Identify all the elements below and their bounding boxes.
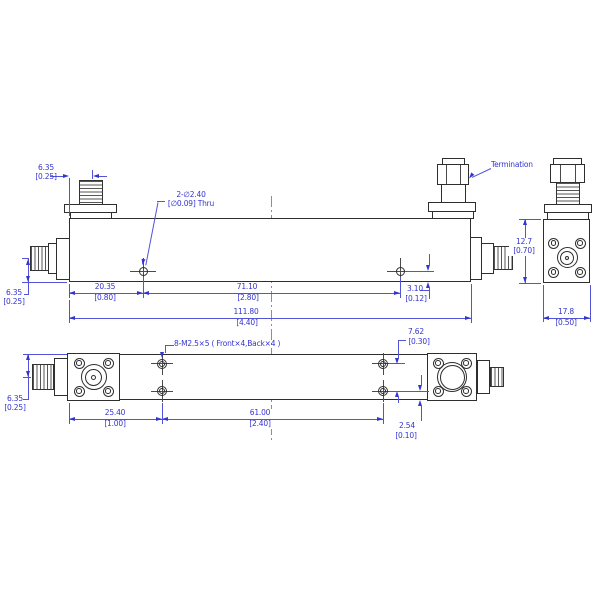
dim-value-mm: 2.54 bbox=[393, 422, 421, 431]
leader-line bbox=[165, 345, 166, 353]
tapped-hole-inner bbox=[159, 361, 165, 367]
termination-hex-nut bbox=[437, 164, 469, 185]
connector-thread bbox=[490, 367, 504, 387]
dimension-line bbox=[421, 375, 422, 385]
hex-facet-line bbox=[575, 165, 576, 182]
dimension-line bbox=[99, 176, 107, 177]
dimension-line bbox=[398, 340, 399, 358]
dim-value-mm: 25.40 bbox=[98, 409, 132, 418]
sma-center-pin bbox=[565, 256, 569, 260]
screw-hole-inner bbox=[577, 240, 583, 246]
sma-center-pin bbox=[91, 375, 96, 380]
dim-value-in: [4.40] bbox=[233, 319, 261, 328]
leader-line bbox=[166, 345, 174, 346]
dimension-line bbox=[398, 397, 399, 403]
dim-value-in: [1.00] bbox=[102, 420, 128, 429]
extension-line bbox=[69, 403, 70, 424]
arrowhead bbox=[543, 316, 549, 320]
arrowhead bbox=[465, 316, 471, 320]
termination-flange-step bbox=[547, 212, 589, 220]
coupler-dimension-drawing: 6.35 [0.25] 2-∅2.40 [∅0.09] Thru 6.35 [0… bbox=[0, 0, 600, 600]
connector-flange-step bbox=[54, 358, 68, 396]
connector-thread bbox=[30, 246, 50, 271]
termination-thread bbox=[556, 182, 580, 205]
hex-facet-line bbox=[446, 165, 447, 184]
dim-value-in: [0.10] bbox=[392, 432, 420, 441]
dim-value-in: [0.80] bbox=[92, 294, 118, 303]
dim-value-mm: 111.80 bbox=[227, 308, 265, 317]
note-text: 8-M2.5×5 ( Front×4,Back×4 ) bbox=[174, 340, 286, 349]
connector-flange bbox=[56, 238, 70, 280]
dim-value-mm: 17.8 bbox=[553, 308, 579, 317]
leader-line bbox=[472, 168, 491, 178]
body-outline bbox=[69, 354, 471, 400]
arrowhead bbox=[395, 391, 399, 397]
arrowhead bbox=[394, 291, 400, 295]
extension-line bbox=[162, 403, 163, 424]
screw-hole-inner bbox=[463, 388, 469, 394]
arrowhead bbox=[523, 277, 527, 283]
dim-value-in: [0.70] bbox=[507, 247, 541, 256]
note-line2: [∅0.09] Thru bbox=[160, 200, 222, 209]
arrowhead bbox=[395, 358, 399, 364]
screw-hole-inner bbox=[76, 388, 82, 394]
extension-line bbox=[383, 403, 384, 424]
screw-hole-inner bbox=[463, 360, 469, 366]
screw-hole-inner bbox=[577, 269, 583, 275]
extension-line bbox=[69, 178, 70, 216]
hex-facet-line bbox=[560, 165, 561, 182]
screw-hole-inner bbox=[435, 360, 441, 366]
screw-hole-inner bbox=[105, 360, 111, 366]
dimension-line bbox=[421, 406, 422, 421]
arrowhead bbox=[143, 291, 149, 295]
arrowhead bbox=[26, 354, 30, 360]
through-hole bbox=[139, 267, 148, 276]
extension-line bbox=[400, 277, 401, 298]
arrowhead bbox=[69, 291, 75, 295]
screw-hole-inner bbox=[551, 240, 557, 246]
termination-neck bbox=[441, 184, 466, 203]
extension-line bbox=[143, 277, 144, 298]
arrowhead bbox=[160, 352, 164, 358]
arrowhead bbox=[377, 417, 383, 421]
tapped-hole-inner bbox=[159, 388, 165, 394]
dim-value-in: [0.30] bbox=[404, 338, 434, 347]
dim-value-in: [2.40] bbox=[246, 420, 274, 429]
dim-value-in: [0.25] bbox=[0, 404, 30, 413]
extension-line bbox=[590, 285, 591, 322]
dim-value-in: [0.12] bbox=[402, 295, 430, 304]
arrowhead bbox=[162, 417, 168, 421]
arrowhead bbox=[418, 385, 422, 391]
dimension-line bbox=[69, 318, 471, 319]
arrowhead bbox=[26, 259, 30, 265]
arrowhead bbox=[69, 316, 75, 320]
screw-hole-inner bbox=[435, 388, 441, 394]
screw-hole-inner bbox=[551, 269, 557, 275]
arrowhead bbox=[523, 219, 527, 225]
termination-hex-nut bbox=[550, 164, 585, 183]
arrowhead bbox=[69, 417, 75, 421]
arrowhead bbox=[26, 276, 30, 282]
arrowhead bbox=[26, 371, 30, 377]
tapped-hole-inner bbox=[380, 388, 386, 394]
label-text: Termination bbox=[491, 161, 541, 170]
through-hole bbox=[396, 267, 405, 276]
dim-value-in: [0.25] bbox=[28, 173, 64, 182]
dim-value-in: [2.80] bbox=[234, 294, 262, 303]
dim-value-mm: 61.00 bbox=[243, 409, 277, 418]
arrowhead bbox=[426, 265, 430, 271]
arrowhead bbox=[93, 174, 99, 178]
dimension-line bbox=[143, 293, 400, 294]
connector-flange-step bbox=[70, 212, 112, 219]
termination-bore-inner bbox=[440, 365, 465, 390]
screw-hole-inner bbox=[105, 388, 111, 394]
termination-flange-step bbox=[432, 211, 474, 219]
arrowhead bbox=[418, 400, 422, 406]
dim-value-mm: 71.10 bbox=[232, 283, 262, 292]
arrowhead bbox=[584, 316, 590, 320]
extension-line bbox=[69, 300, 70, 323]
connector-thread bbox=[32, 364, 54, 390]
dim-value-mm: 20.35 bbox=[90, 283, 120, 292]
connector-flange-step bbox=[477, 360, 490, 394]
extension-line bbox=[471, 284, 472, 323]
dim-value-mm: 3.10 bbox=[402, 285, 428, 294]
tapped-hole-inner bbox=[380, 361, 386, 367]
body-outline bbox=[69, 218, 471, 282]
dim-value-in: [0.50] bbox=[551, 319, 581, 328]
dim-value-in: [0.25] bbox=[0, 298, 28, 307]
dim-value-mm: 7.62 bbox=[402, 328, 430, 337]
hex-facet-line bbox=[460, 165, 461, 184]
dimension-line bbox=[429, 254, 430, 265]
connector-thread bbox=[79, 180, 103, 205]
screw-hole-inner bbox=[76, 360, 82, 366]
